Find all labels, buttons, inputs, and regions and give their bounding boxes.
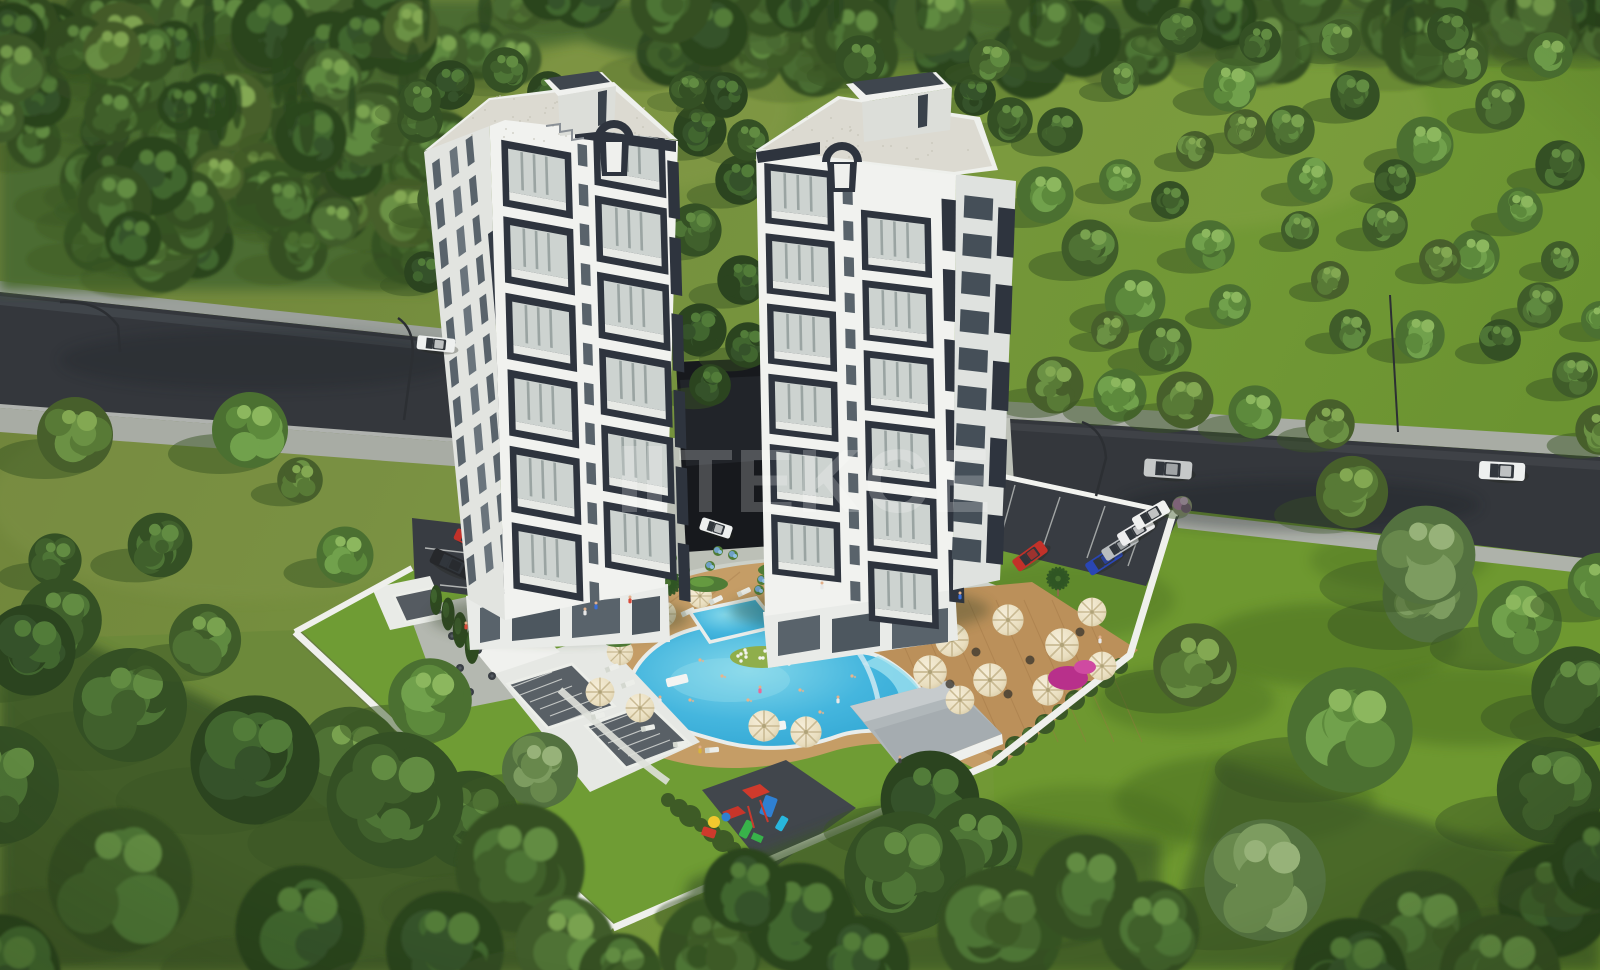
svg-text:TEKCE: TEKCE: [678, 432, 993, 532]
